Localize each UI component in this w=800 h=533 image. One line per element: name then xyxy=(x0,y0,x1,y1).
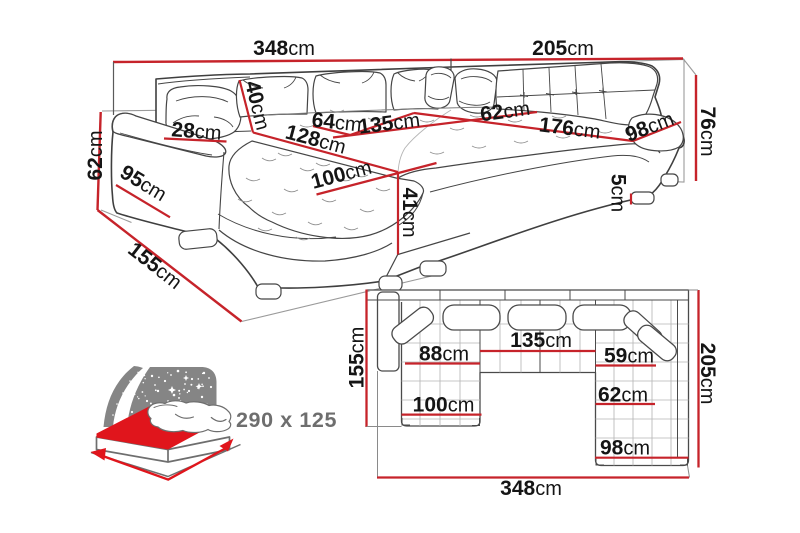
svg-text:290 x 125: 290 x 125 xyxy=(236,408,337,432)
svg-text:62cm: 62cm xyxy=(598,384,648,407)
svg-text:205cm: 205cm xyxy=(532,37,594,60)
svg-text:41cm: 41cm xyxy=(398,187,421,237)
svg-text:5cm: 5cm xyxy=(607,174,630,212)
svg-text:98cm: 98cm xyxy=(600,437,650,460)
svg-text:155cm: 155cm xyxy=(346,327,369,389)
svg-text:348cm: 348cm xyxy=(500,477,562,500)
svg-text:135cm: 135cm xyxy=(510,329,572,352)
svg-text:205cm: 205cm xyxy=(696,343,719,405)
svg-text:62cm: 62cm xyxy=(84,130,107,180)
svg-text:348cm: 348cm xyxy=(253,37,315,60)
svg-text:59cm: 59cm xyxy=(604,345,654,368)
svg-text:28cm: 28cm xyxy=(171,118,223,144)
svg-text:100cm: 100cm xyxy=(413,394,475,417)
svg-text:76cm: 76cm xyxy=(696,106,719,156)
svg-text:88cm: 88cm xyxy=(419,343,469,366)
